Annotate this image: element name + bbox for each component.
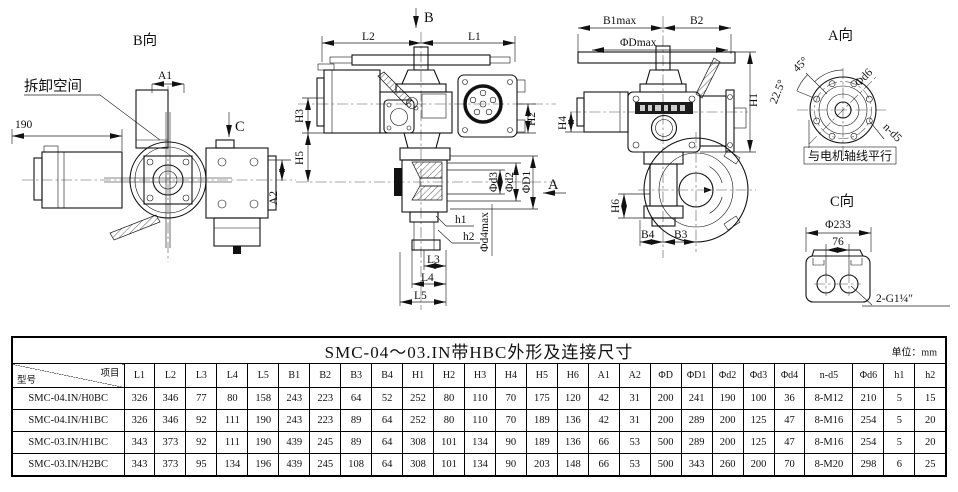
- angle-45-label: 45°: [791, 55, 811, 75]
- dim-value: 70: [495, 388, 526, 410]
- dim-value: 101: [434, 454, 465, 477]
- dim-value: 6: [884, 454, 915, 477]
- dim-value: 134: [464, 432, 495, 454]
- column-header: H4: [495, 364, 526, 388]
- dim-value: 47: [774, 410, 805, 432]
- model-name: SMC-03.IN/H1BC: [12, 432, 124, 454]
- dim-l4: L4: [421, 272, 434, 284]
- dim-value: 42: [588, 410, 619, 432]
- dim-value: 77: [186, 388, 217, 410]
- table-row: SMC-04.IN/H1BC32634692111190243223896425…: [12, 410, 946, 432]
- dim-value: 92: [186, 432, 217, 454]
- dim-value: 190: [712, 388, 743, 410]
- right-view: B1max B2 ΦDmax H1 H4 H6 B4 B3: [557, 15, 760, 258]
- model-name: SMC-03.IN/H2BC: [12, 454, 124, 477]
- motor-side: [34, 146, 122, 208]
- dim-value: 175: [526, 388, 557, 410]
- dim-value: 254: [853, 432, 884, 454]
- column-header: L1: [124, 364, 155, 388]
- dim-value: 110: [464, 410, 495, 432]
- dim-value: 64: [341, 388, 372, 410]
- dim-value: 326: [124, 410, 155, 432]
- view-c-title: C向: [830, 193, 854, 210]
- dim-value: 66: [588, 454, 619, 477]
- dim-value: 90: [495, 454, 526, 477]
- column-header: L3: [186, 364, 217, 388]
- section-c-label: C: [235, 119, 245, 135]
- dim-value: 346: [155, 388, 186, 410]
- corner-header-top: 项目: [100, 365, 119, 379]
- dim-value: 200: [650, 388, 681, 410]
- table-title: SMC-04～03.IN带HBC外形及连接尺寸: [13, 338, 945, 363]
- column-header: B1: [279, 364, 310, 388]
- column-header: h1: [884, 364, 915, 388]
- dim-value: 101: [434, 432, 465, 454]
- dim-dmax: ΦDmax: [620, 37, 657, 49]
- dim-value: 252: [403, 410, 434, 432]
- dim-value: 289: [681, 410, 712, 432]
- dim-h1: H1: [748, 93, 760, 107]
- column-header: A1: [588, 364, 619, 388]
- dim-value: 136: [557, 432, 588, 454]
- dim-b1max: B1max: [603, 15, 636, 27]
- column-header: H5: [526, 364, 557, 388]
- output-coupling: [394, 133, 450, 250]
- view-b-direction: B向 拆卸空间 190 A1 C A2: [12, 32, 296, 262]
- dim-value: 53: [619, 432, 650, 454]
- dim-value: 111: [217, 410, 248, 432]
- dim-value: 8-M12: [805, 388, 853, 410]
- dim-value: 196: [248, 454, 279, 477]
- dim-value: 100: [743, 388, 774, 410]
- dim-value: 47: [774, 432, 805, 454]
- dim-value: 136: [557, 410, 588, 432]
- dim-value: 439: [279, 432, 310, 454]
- dim-76: 76: [832, 236, 844, 248]
- model-name: SMC-04.IN/H0BC: [12, 388, 124, 410]
- dim-value: 210: [853, 388, 884, 410]
- dim-b2: B2: [690, 15, 704, 27]
- dim-h1-small: h1: [455, 214, 467, 226]
- dim-value: 189: [526, 410, 557, 432]
- dim-value: 89: [341, 432, 372, 454]
- dimension-table-section: SMC-04～03.IN带HBC外形及连接尺寸单位：mm项目型号L1L2L3L4…: [11, 336, 947, 477]
- technical-drawing: B向 拆卸空间 190 A1 C A2: [0, 0, 958, 334]
- dim-value: 254: [853, 410, 884, 432]
- table-row: SMC-03.IN/H1BC34337392111190439245896430…: [12, 432, 946, 454]
- dim-value: 20: [915, 410, 946, 432]
- dim-d3: Φd3: [488, 172, 500, 192]
- dim-a1: A1: [158, 70, 172, 82]
- dim-l1: L1: [468, 31, 481, 43]
- dim-value: 500: [650, 432, 681, 454]
- dim-value: 190: [248, 432, 279, 454]
- table-header-row: 项目型号L1L2L3L4L5B1B2B3B4H1H2H3H4H5H6A1A2ΦD…: [12, 364, 946, 388]
- dim-value: 70: [495, 410, 526, 432]
- dim-d4max: Φd4max: [479, 212, 491, 252]
- dim-value: 89: [341, 410, 372, 432]
- angle-22-5-label: 22.5°: [768, 78, 789, 106]
- view-a-title: A向: [828, 27, 853, 44]
- gearbox-side: [206, 140, 276, 254]
- dim-value: 500: [650, 454, 681, 477]
- dim-value: 8-M16: [805, 432, 853, 454]
- dim-value: 260: [712, 454, 743, 477]
- column-header: ΦD: [650, 364, 681, 388]
- dim-value: 346: [155, 410, 186, 432]
- section-b-label: B: [424, 10, 434, 26]
- dim-value: 80: [217, 388, 248, 410]
- dim-value: 243: [279, 410, 310, 432]
- column-header: Φd6: [853, 364, 884, 388]
- lever-handle: [110, 215, 160, 240]
- dim-value: 120: [557, 388, 588, 410]
- dim-value: 223: [310, 388, 341, 410]
- dim-value: 36: [774, 388, 805, 410]
- dim-b3: B3: [674, 229, 688, 241]
- corner-header-cell: 项目型号: [12, 364, 124, 388]
- yoke-tube: [136, 90, 168, 148]
- dim-value: 20: [915, 432, 946, 454]
- dim-value: 64: [372, 410, 403, 432]
- dim-value: 64: [372, 432, 403, 454]
- dim-h4: H4: [557, 116, 569, 130]
- motor-axis-note: 与电机轴线平行: [808, 148, 892, 163]
- motor-front: [317, 64, 380, 133]
- dim-l3: L3: [427, 254, 440, 266]
- table-title-row: SMC-04～03.IN带HBC外形及连接尺寸单位：mm: [12, 337, 946, 364]
- dim-b4: B4: [641, 229, 655, 241]
- column-header: Φd2: [712, 364, 743, 388]
- dim-value: 108: [341, 454, 372, 477]
- dim-value: 64: [372, 454, 403, 477]
- dim-value: 252: [403, 388, 434, 410]
- dim-value: 343: [124, 454, 155, 477]
- connector-right-view: [696, 58, 746, 152]
- dim-value: 200: [712, 410, 743, 432]
- electrical-connector: [458, 75, 525, 137]
- dim-value: 125: [743, 410, 774, 432]
- dimension-table: SMC-04～03.IN带HBC外形及连接尺寸单位：mm项目型号L1L2L3L4…: [11, 336, 947, 477]
- dim-value: 158: [248, 388, 279, 410]
- dim-value: 308: [403, 432, 434, 454]
- column-header: H3: [464, 364, 495, 388]
- dim-value: 111: [217, 432, 248, 454]
- dim-h2-small: h2: [463, 231, 475, 243]
- column-header: H1: [403, 364, 434, 388]
- dim-value: 245: [310, 454, 341, 477]
- dim-value: 200: [650, 410, 681, 432]
- model-name: SMC-04.IN/H1BC: [12, 410, 124, 432]
- dim-a2: A2: [268, 191, 280, 205]
- dim-value: 134: [464, 454, 495, 477]
- dim-value: 298: [853, 454, 884, 477]
- dim-h3: H3: [294, 109, 306, 123]
- dim-value: 25: [915, 454, 946, 477]
- unit-label: 单位：mm: [891, 343, 937, 358]
- column-header: H6: [557, 364, 588, 388]
- table-row: SMC-04.IN/H0BC32634677801582432236452252…: [12, 388, 946, 410]
- dim-value: 308: [403, 454, 434, 477]
- view-a-direction: A向 45° 22.5° Φd6 n-d5 与电机轴线平行: [768, 27, 904, 164]
- dim-value: 95: [186, 454, 217, 477]
- dim-value: 203: [526, 454, 557, 477]
- column-header: ΦD1: [681, 364, 712, 388]
- column-header: H2: [434, 364, 465, 388]
- dim-h5: H5: [294, 151, 306, 165]
- dim-value: 373: [155, 432, 186, 454]
- dim-h6: H6: [610, 199, 622, 213]
- dim-value: 134: [217, 454, 248, 477]
- dim-h2: H2: [526, 112, 538, 126]
- column-header: L5: [248, 364, 279, 388]
- dim-n-d5: n-d5: [880, 121, 904, 145]
- corner-header-bottom: 型号: [17, 372, 36, 386]
- dim-l2: L2: [362, 31, 375, 43]
- dim-value: 5: [884, 388, 915, 410]
- dim-value: 289: [681, 432, 712, 454]
- worm-gear-housing: [638, 132, 756, 252]
- dim-value: 148: [557, 454, 588, 477]
- dim-value: 5: [884, 432, 915, 454]
- dim-value: 200: [712, 432, 743, 454]
- dim-value: 90: [495, 432, 526, 454]
- column-header: B3: [341, 364, 372, 388]
- section-a-label: A: [548, 177, 559, 193]
- dim-value: 343: [124, 432, 155, 454]
- dim-l5: L5: [414, 290, 427, 302]
- dim-value: 42: [588, 388, 619, 410]
- dim-value: 31: [619, 388, 650, 410]
- dim-value: 31: [619, 410, 650, 432]
- dim-value: 5: [884, 410, 915, 432]
- table-row: SMC-03.IN/H2BC34337395134196439245108643…: [12, 454, 946, 477]
- view-c-direction: C向 Φ233 76 2-G1¼″: [806, 193, 950, 306]
- dim-dd1: ΦD1: [521, 171, 533, 194]
- gear-housing: [378, 72, 452, 133]
- column-header: Φd4: [774, 364, 805, 388]
- dim-value: 343: [681, 454, 712, 477]
- dim-value: 80: [434, 388, 465, 410]
- dim-value: 8-M16: [805, 410, 853, 432]
- dim-233: Φ233: [825, 219, 851, 231]
- dim-value: 52: [372, 388, 403, 410]
- table-title-cell: SMC-04～03.IN带HBC外形及连接尺寸单位：mm: [12, 337, 946, 364]
- column-header: A2: [619, 364, 650, 388]
- thread-spec: 2-G1¼″: [876, 293, 913, 305]
- dim-d2: Φd2: [504, 172, 516, 192]
- dim-value: 200: [743, 454, 774, 477]
- dim-value: 8-M20: [805, 454, 853, 477]
- column-header: L4: [217, 364, 248, 388]
- dim-value: 326: [124, 388, 155, 410]
- dim-value: 125: [743, 432, 774, 454]
- dim-value: 53: [619, 454, 650, 477]
- dim-value: 66: [588, 432, 619, 454]
- dim-value: 223: [310, 410, 341, 432]
- view-b-title: B向: [133, 32, 157, 49]
- dim-value: 80: [434, 410, 465, 432]
- column-header: B4: [372, 364, 403, 388]
- dim-value: 189: [526, 432, 557, 454]
- engineering-drawing-sheet: { "drawing": { "view_b": { "title": "B向"…: [0, 0, 958, 492]
- dim-value: 439: [279, 454, 310, 477]
- dim-value: 70: [774, 454, 805, 477]
- column-header: Φd3: [743, 364, 774, 388]
- dim-value: 92: [186, 410, 217, 432]
- dim-value: 190: [248, 410, 279, 432]
- dim-value: 245: [310, 432, 341, 454]
- column-header: L2: [155, 364, 186, 388]
- actuator-body: [628, 92, 700, 152]
- column-header: n-d5: [805, 364, 853, 388]
- column-header: h2: [915, 364, 946, 388]
- dim-value: 15: [915, 388, 946, 410]
- removal-space-label: 拆卸空间: [24, 78, 82, 95]
- front-view: B L2 L1 H3 H5 H2 Φd3 Φd2 ΦD1 A h1 h2 Φd4…: [294, 8, 566, 310]
- dim-value: 110: [464, 388, 495, 410]
- dim-190: 190: [15, 119, 33, 131]
- dim-value: 373: [155, 454, 186, 477]
- column-header: B2: [310, 364, 341, 388]
- dim-value: 243: [279, 388, 310, 410]
- dim-value: 241: [681, 388, 712, 410]
